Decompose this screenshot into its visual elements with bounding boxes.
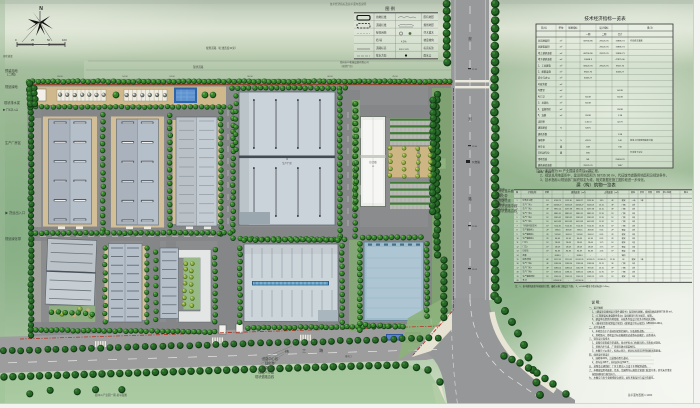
- svg-text:29125.76: 29125.76: [599, 65, 609, 67]
- svg-text:28.08: 28.08: [555, 242, 560, 244]
- svg-text:1: 1: [517, 200, 518, 202]
- svg-text:4413.83: 4413.83: [565, 221, 572, 223]
- svg-text:738.16: 738.16: [555, 230, 561, 232]
- svg-text:m²: m²: [560, 102, 563, 105]
- svg-text:42.75: 42.75: [617, 121, 623, 123]
- svg-text:86.68: 86.68: [577, 238, 582, 240]
- svg-text:20: 20: [517, 280, 519, 282]
- svg-text:排水方向: 排水方向: [376, 54, 387, 58]
- svg-text:3882.41: 3882.41: [587, 213, 594, 215]
- svg-text:68736.96: 68736.96: [583, 40, 593, 42]
- svg-text:3、技术指标以规划部门最终核定为准，相关数据在施工图阶段进一: 3、技术指标以规划部门最终核定为准，相关数据在施工图阶段进一步深化。: [540, 177, 647, 182]
- svg-text:m²: m²: [560, 71, 563, 74]
- svg-text:987.08: 987.08: [588, 267, 594, 269]
- svg-text:挡 墙: 挡 墙: [376, 38, 382, 42]
- svg-text:30.00: 30.00: [327, 76, 333, 78]
- svg-text:532.48: 532.48: [555, 234, 561, 236]
- svg-text:84.38: 84.38: [577, 251, 582, 253]
- svg-text:8.35: 8.35: [600, 234, 604, 236]
- svg-text:24.00: 24.00: [169, 76, 175, 78]
- svg-text:m²: m²: [560, 77, 563, 80]
- svg-text:1587: 1587: [618, 165, 624, 167]
- svg-text:15: 15: [517, 259, 519, 261]
- svg-text:18.9: 18.9: [600, 200, 604, 202]
- svg-text:原有地形: 原有地形: [424, 15, 435, 19]
- svg-text:84.38: 84.38: [566, 251, 571, 253]
- svg-text:18: 18: [517, 272, 519, 274]
- svg-text:3882.41: 3882.41: [565, 213, 572, 215]
- svg-text:m²: m²: [560, 52, 563, 55]
- svg-text:7: 7: [517, 225, 518, 227]
- svg-text:m²: m²: [560, 108, 563, 111]
- svg-text:3.75: 3.75: [600, 242, 604, 244]
- svg-text:84.38: 84.38: [585, 103, 591, 105]
- svg-text:2086.04: 2086.04: [554, 267, 561, 269]
- svg-text:公交站: 公交站: [472, 160, 480, 164]
- svg-text:74896.73: 74896.73: [615, 53, 625, 55]
- svg-text:道路中心线: 道路中心线: [262, 356, 279, 361]
- svg-text:22.45: 22.45: [610, 259, 615, 261]
- svg-text:28.08: 28.08: [577, 246, 582, 248]
- svg-text:6008.27: 6008.27: [616, 72, 625, 74]
- svg-text:现状排水渠: 现状排水渠: [4, 100, 21, 105]
- svg-text:13.05: 13.05: [472, 269, 478, 271]
- svg-text:20136.70: 20136.70: [598, 259, 606, 261]
- svg-text:14: 14: [517, 255, 519, 257]
- svg-text:5/1: 5/1: [546, 200, 549, 202]
- svg-text:备 注: 备 注: [647, 26, 653, 30]
- svg-text:（现状厂区）: （现状厂区）: [340, 64, 354, 68]
- svg-text:12: 12: [517, 246, 519, 248]
- svg-text:28.08: 28.08: [588, 242, 593, 244]
- svg-text:≤45%: ≤45%: [585, 127, 591, 130]
- svg-text:29125.76: 29125.76: [599, 53, 609, 55]
- svg-text:8.35: 8.35: [600, 276, 604, 278]
- svg-text:道路标高: 道路标高: [376, 46, 387, 50]
- svg-text:19: 19: [517, 276, 519, 278]
- svg-text:29125.76: 29125.76: [583, 165, 593, 167]
- svg-text:m²: m²: [560, 39, 563, 42]
- svg-text:532.48: 532.48: [577, 234, 583, 236]
- svg-text:1062.98: 1062.98: [576, 267, 583, 269]
- svg-text:4413.83: 4413.83: [576, 221, 583, 223]
- svg-text:50: 50: [47, 38, 51, 42]
- svg-text:规划道路（红线宽度30米）: 规划道路（红线宽度30米）: [206, 46, 237, 50]
- svg-text:m²: m²: [560, 114, 563, 117]
- svg-text:技术经济指标一览表: 技术经济指标一览表: [584, 15, 626, 22]
- svg-text:6008.27: 6008.27: [584, 78, 593, 80]
- svg-text:坡度坡向: 坡度坡向: [424, 38, 435, 42]
- svg-text:综合楼: 综合楼: [369, 160, 377, 164]
- svg-text:7114.82: 7114.82: [554, 225, 561, 227]
- svg-text:m²: m²: [560, 46, 563, 49]
- svg-text:23.15: 23.15: [599, 204, 604, 206]
- svg-text:93.98: 93.98: [617, 109, 623, 111]
- svg-text:3.75: 3.75: [600, 246, 604, 248]
- svg-text:11.95: 11.95: [599, 272, 604, 274]
- svg-text:84.38: 84.38: [617, 96, 623, 98]
- svg-text:12.35: 12.35: [472, 69, 478, 71]
- svg-text:62908.36: 62908.36: [554, 280, 562, 282]
- svg-text:2086.04: 2086.04: [565, 267, 572, 269]
- svg-text:▶ 厂区次入口: ▶ 厂区次入口: [3, 108, 19, 112]
- svg-text:28.08: 28.08: [588, 246, 593, 248]
- svg-text:2188.36: 2188.36: [565, 263, 572, 265]
- svg-text:现状道路边线: 现状道路边线: [255, 374, 275, 379]
- svg-text:3188.25: 3188.25: [576, 272, 583, 274]
- svg-text:9922.76: 9922.76: [616, 65, 625, 67]
- svg-text:54.00: 54.00: [122, 76, 128, 78]
- svg-text:8.35: 8.35: [600, 238, 604, 240]
- svg-text:生产厂房区: 生产厂房区: [5, 140, 22, 145]
- svg-text:2188.36: 2188.36: [554, 263, 561, 265]
- svg-text:86.68: 86.68: [555, 238, 560, 240]
- svg-text:23.15: 23.15: [599, 267, 604, 269]
- svg-text:2385.82: 2385.82: [554, 217, 561, 219]
- svg-text:3882.41: 3882.41: [576, 213, 583, 215]
- svg-text:43.34: 43.34: [566, 238, 571, 240]
- svg-text:3297.38: 3297.38: [587, 209, 594, 211]
- svg-text:28.08: 28.08: [566, 246, 571, 248]
- svg-text:≤20%: ≤20%: [585, 139, 591, 142]
- svg-text:m²: m²: [560, 83, 563, 86]
- svg-text:1248.15: 1248.15: [576, 276, 583, 278]
- svg-text:2188.36: 2188.36: [587, 263, 594, 265]
- svg-text:29125.76: 29125.76: [599, 47, 609, 49]
- svg-text:29125.76: 29125.76: [599, 40, 609, 42]
- svg-text:9698.27: 9698.27: [576, 200, 583, 202]
- svg-text:10: 10: [517, 238, 519, 240]
- svg-text:3882.41: 3882.41: [554, 213, 561, 215]
- svg-text:乔木灌木: 乔木灌木: [424, 31, 435, 35]
- svg-text:3188.25: 3188.25: [554, 272, 561, 274]
- svg-text:1248.15: 1248.15: [587, 276, 594, 278]
- svg-text:4.5%: 4.5%: [401, 41, 407, 44]
- svg-text:7114.82: 7114.82: [576, 225, 583, 227]
- svg-text:68736.96: 68736.96: [576, 280, 584, 282]
- svg-text:规划道路中线: 规划道路中线: [498, 203, 518, 208]
- svg-text:3556.09: 3556.09: [587, 204, 594, 206]
- svg-text:23034.76: 23034.76: [615, 159, 625, 161]
- svg-text:图 例: 图 例: [385, 5, 395, 12]
- svg-text:绿化用地: 绿化用地: [376, 31, 387, 35]
- svg-text:69.00: 69.00: [57, 76, 63, 78]
- svg-text:xxx.x xxx: xxx.x xxx: [399, 48, 410, 51]
- svg-text:11.95: 11.95: [599, 213, 604, 215]
- svg-text:2088.3: 2088.3: [555, 255, 561, 257]
- svg-text:13: 13: [517, 251, 519, 253]
- svg-text:74896.73: 74896.73: [615, 47, 625, 49]
- svg-text:2385.82: 2385.82: [576, 217, 583, 219]
- svg-text:28.08: 28.08: [555, 246, 560, 248]
- svg-text:现状道路边线: 现状道路边线: [498, 208, 518, 213]
- svg-text:11.95: 11.95: [599, 221, 604, 223]
- svg-text:47975.06: 47975.06: [615, 59, 625, 61]
- svg-text:12.85: 12.85: [472, 226, 478, 228]
- svg-text:标高标注: 标高标注: [424, 46, 435, 50]
- svg-text:规划绿化带: 规划绿化带: [5, 236, 22, 241]
- svg-text:13.35: 13.35: [599, 225, 604, 227]
- svg-text:2385.82: 2385.82: [587, 217, 594, 219]
- svg-text:9: 9: [517, 234, 518, 236]
- svg-text:1188.25: 1188.25: [565, 272, 572, 274]
- svg-text:266.24: 266.24: [566, 234, 572, 236]
- svg-text:68225.76: 68225.76: [583, 65, 593, 67]
- svg-text:▶ 货运出入口: ▶ 货运出入口: [5, 210, 25, 215]
- svg-text:%: %: [560, 128, 562, 130]
- svg-text:8: 8: [517, 230, 518, 232]
- svg-text:84.38: 84.38: [585, 96, 591, 98]
- svg-text:郑州市xx机械设备有限公司: 郑州市xx机械设备有限公司: [340, 60, 369, 64]
- svg-text:4: 4: [517, 213, 518, 215]
- svg-text:43.34: 43.34: [588, 238, 593, 240]
- svg-text:10848.3: 10848.3: [584, 59, 593, 61]
- svg-text:3556.09: 3556.09: [565, 204, 572, 206]
- svg-text:用地红线: 用地红线: [376, 15, 387, 19]
- svg-text:7114.82: 7114.82: [565, 225, 572, 227]
- svg-text:1188.25: 1188.25: [587, 272, 594, 274]
- svg-text:规划人行道: 规划人行道: [258, 370, 275, 375]
- svg-text:总平面布置图 1:1000: 总平面布置图 1:1000: [628, 393, 653, 397]
- svg-text:雨水口: 雨水口: [424, 54, 432, 58]
- svg-text:84.38: 84.38: [588, 251, 593, 253]
- svg-text:现状道路: 现状道路: [193, 65, 204, 69]
- svg-text:8.35: 8.35: [600, 230, 604, 232]
- svg-text:4413.83: 4413.83: [554, 221, 561, 223]
- svg-text:郑州xx产业园一期 总平面图: 郑州xx产业园一期 总平面图: [95, 393, 127, 397]
- svg-text:7114.82: 7114.82: [587, 225, 594, 227]
- svg-text:9892.14: 9892.14: [554, 209, 561, 211]
- svg-text:规划地形: 规划地形: [424, 23, 435, 27]
- svg-text:9892.14: 9892.14: [576, 209, 583, 211]
- svg-text:1192.30: 1192.30: [587, 200, 594, 202]
- svg-text:建（构）筑物一览表: 建（构）筑物一览表: [576, 182, 616, 189]
- svg-text:3297.38: 3297.38: [565, 209, 572, 211]
- svg-text:2088.3: 2088.3: [577, 255, 583, 257]
- svg-text:注:1、本工程为 xx 产业园建设项目一期工程。: 注:1、本工程为 xx 产业园建设项目一期工程。: [536, 168, 601, 173]
- svg-text:4413.83: 4413.83: [587, 221, 594, 223]
- svg-text:单位: 单位: [558, 26, 564, 30]
- svg-text:4.35: 4.35: [600, 251, 604, 253]
- svg-text:93.98: 93.98: [585, 115, 591, 117]
- svg-text:10126.70: 10126.70: [587, 259, 595, 261]
- svg-text:9922.76: 9922.76: [584, 72, 593, 74]
- svg-text:100: 100: [62, 38, 67, 42]
- svg-text:17: 17: [517, 267, 519, 269]
- svg-text:25: 25: [31, 38, 35, 42]
- svg-text:2385.82: 2385.82: [565, 217, 572, 219]
- svg-text:%: %: [560, 140, 562, 142]
- svg-text:5122.35: 5122.35: [554, 259, 561, 261]
- svg-text:m²: m²: [560, 89, 563, 92]
- svg-text:道路红线: 道路红线: [498, 198, 512, 203]
- svg-text:规划绿地: 规划绿地: [5, 84, 19, 89]
- svg-text:1248.15: 1248.15: [565, 276, 572, 278]
- svg-text:5: 5: [517, 217, 518, 219]
- svg-text:1210.32: 1210.32: [565, 259, 572, 261]
- svg-text:84.38: 84.38: [617, 90, 623, 92]
- svg-text:绿化带: 绿化带: [498, 193, 508, 198]
- svg-text:指 标: 指 标: [541, 26, 547, 30]
- svg-text:369.08: 369.08: [588, 230, 594, 232]
- svg-text:10668.27: 10668.27: [576, 204, 584, 206]
- svg-text:10668.27: 10668.27: [554, 204, 562, 206]
- svg-text:23.15: 23.15: [599, 209, 604, 211]
- svg-text:28.08: 28.08: [566, 242, 571, 244]
- svg-text:技术经济指标及总平面布置说明: 技术经济指标及总平面布置说明: [330, 2, 367, 6]
- svg-text:4768.75: 4768.75: [554, 200, 561, 202]
- svg-text:45.00: 45.00: [392, 76, 398, 78]
- svg-text:1248.15: 1248.15: [554, 276, 561, 278]
- svg-text:m²: m²: [560, 64, 563, 67]
- svg-text:738.16: 738.16: [577, 230, 583, 232]
- svg-text:1192.30: 1192.30: [565, 200, 572, 202]
- svg-text:12.60: 12.60: [472, 146, 478, 148]
- svg-text:2188.36: 2188.36: [576, 263, 583, 265]
- svg-text:20141.35: 20141.35: [576, 259, 584, 261]
- svg-text:说 明：: 说 明：: [591, 300, 602, 305]
- svg-text:23.15: 23.15: [599, 263, 604, 265]
- svg-text:266.24: 266.24: [588, 234, 594, 236]
- svg-text:84.38: 84.38: [555, 251, 560, 253]
- svg-text:6: 6: [517, 221, 518, 223]
- svg-text:现状灌渠: 现状灌渠: [3, 54, 13, 58]
- svg-text:16: 16: [517, 263, 519, 265]
- svg-text:m²: m²: [560, 95, 563, 98]
- svg-text:消防登高面: 消防登高面: [498, 188, 514, 193]
- svg-text:m²: m²: [560, 58, 563, 61]
- svg-text:74896.73: 74896.73: [615, 40, 625, 42]
- svg-text:11.95: 11.95: [599, 217, 604, 219]
- svg-text:纬 三 路: 纬 三 路: [285, 347, 329, 354]
- svg-text:2、规划总用地面积中，建设用地面积为 68736.96 m²: 2、规划总用地面积中，建设用地面积为 68736.96 m²，代征城市道路用地面…: [540, 173, 669, 178]
- svg-text:96.00: 96.00: [247, 76, 253, 78]
- svg-text:28.08: 28.08: [577, 242, 582, 244]
- svg-text:生产厂房: 生产厂房: [282, 161, 292, 165]
- svg-text:1.3/2.0: 1.3/2.0: [585, 121, 592, 123]
- svg-text:道路红线: 道路红线: [376, 23, 387, 27]
- svg-text:68736.96: 68736.96: [583, 53, 593, 55]
- svg-text:11: 11: [517, 242, 519, 244]
- svg-text:369.08: 369.08: [566, 230, 572, 232]
- svg-text:（二期）: （二期）: [5, 72, 18, 77]
